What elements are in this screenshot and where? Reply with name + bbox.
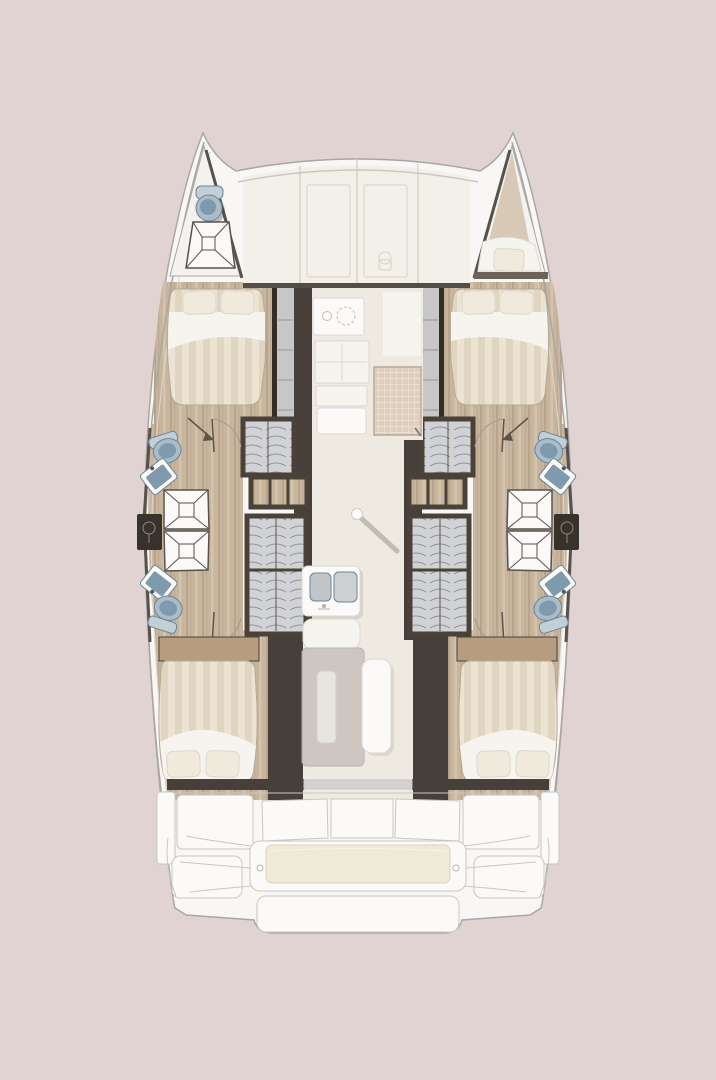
seatback-panel [395, 799, 460, 841]
swim-platform-step [257, 896, 459, 932]
saloon-table [302, 648, 364, 766]
toilet-icon [196, 186, 225, 224]
sink-basin [334, 572, 357, 602]
foredeck-panel [238, 159, 478, 288]
shower-icon [186, 222, 235, 268]
cooktop-icon [313, 298, 364, 335]
sink-island [302, 566, 363, 649]
cockpit-bench [250, 841, 466, 891]
galley-counter [315, 341, 369, 434]
sink-basin [310, 573, 331, 601]
forward-bulkhead [243, 283, 470, 288]
floor-plan-svg [0, 0, 716, 1080]
galley-floor-mat [374, 367, 421, 436]
saloon-bench [362, 659, 394, 756]
seatback-panel [262, 799, 328, 841]
bench-cushion [266, 845, 450, 883]
fitting [257, 865, 263, 871]
berth-edge [474, 272, 548, 279]
sliding-door [304, 780, 412, 789]
seatback-panel [331, 799, 393, 838]
island-cabinet [303, 619, 360, 649]
pillow [493, 248, 524, 272]
catamaran-floor-plan [0, 0, 716, 1080]
fitting [453, 865, 459, 871]
aft-bulkhead [167, 779, 549, 790]
